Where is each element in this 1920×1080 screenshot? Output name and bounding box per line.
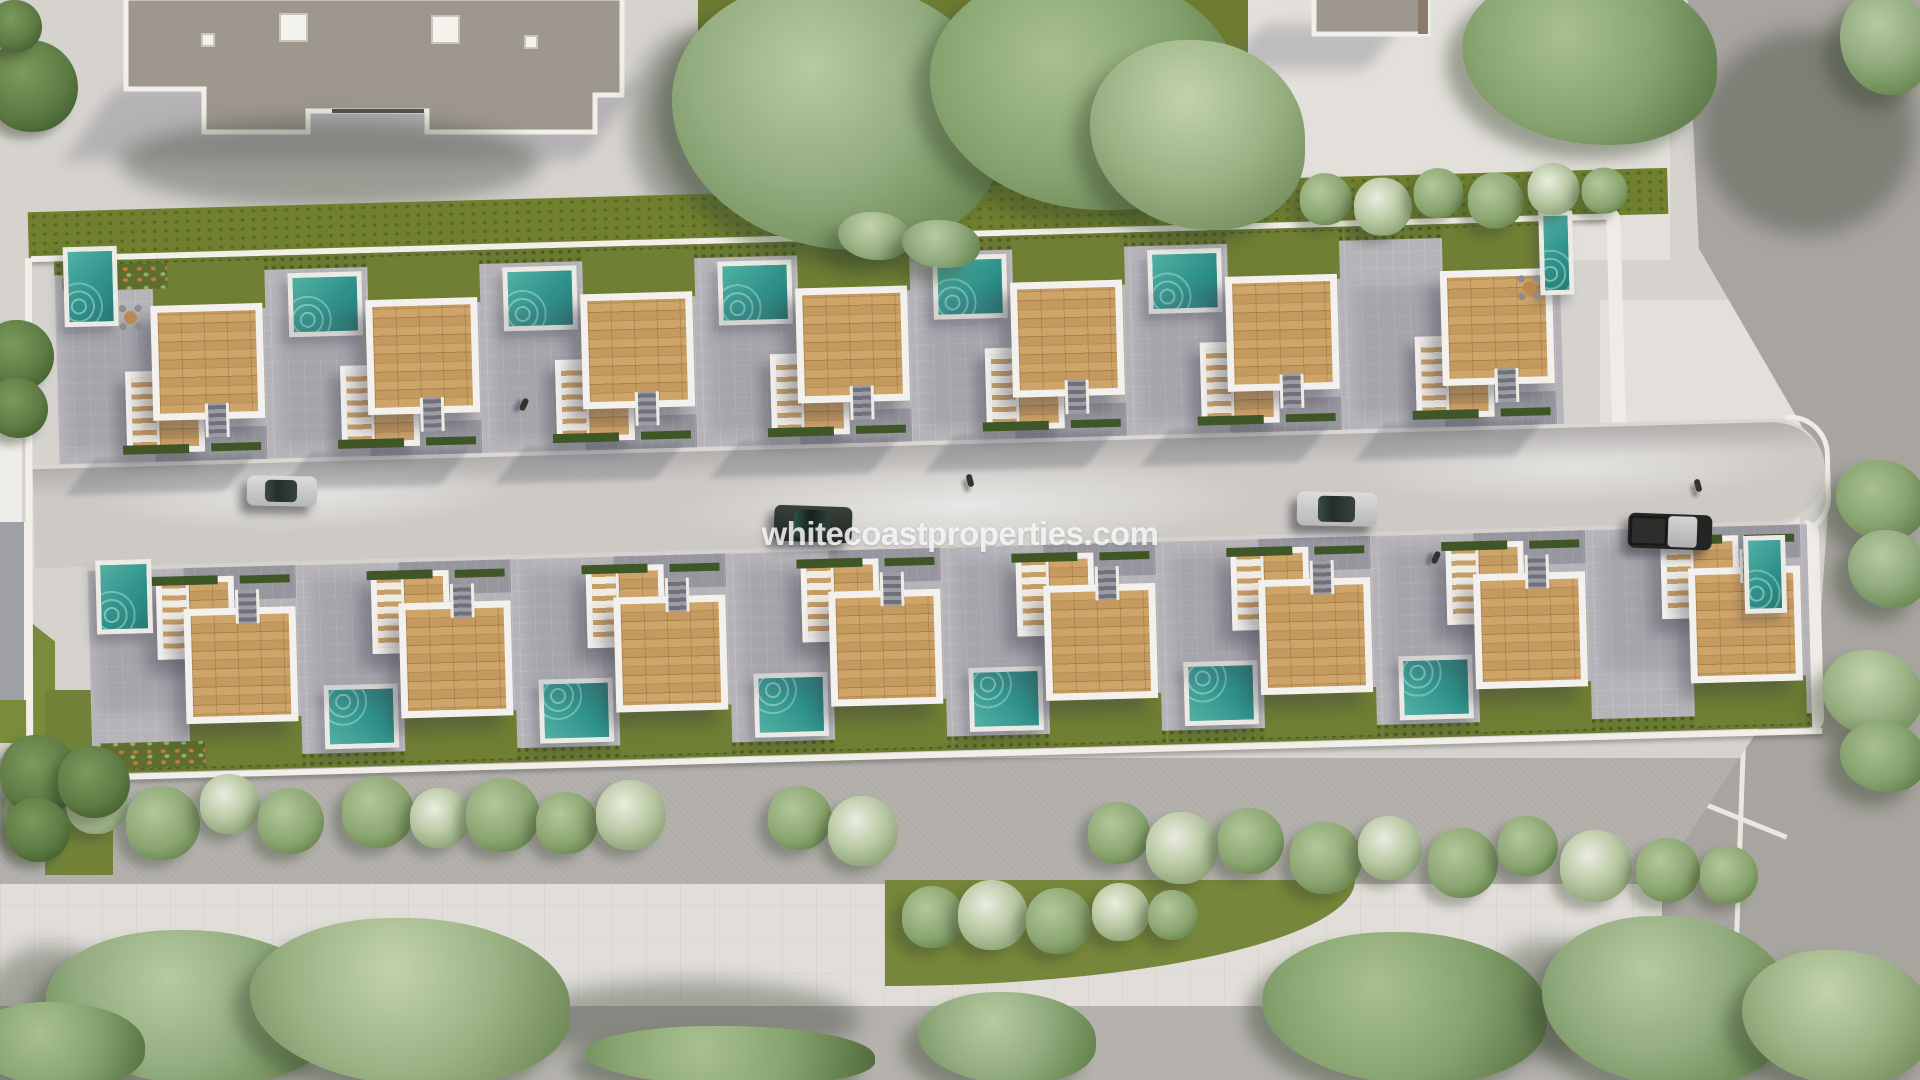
grass-patch — [1694, 675, 1807, 726]
pool — [95, 559, 153, 634]
tree — [1026, 888, 1092, 954]
tree — [1560, 830, 1632, 902]
grass-patch — [404, 710, 517, 761]
stairs — [235, 589, 260, 624]
tree — [1428, 828, 1498, 898]
villa-plot — [1129, 227, 1349, 436]
hedge — [1198, 415, 1264, 426]
parked-car — [247, 475, 318, 506]
tree — [258, 788, 324, 854]
villa-roof-terrace — [398, 600, 513, 718]
tree — [918, 992, 1096, 1080]
left-building-roof — [0, 522, 28, 700]
tree — [1088, 802, 1150, 864]
hedge — [367, 569, 433, 580]
villa-plot — [732, 547, 952, 756]
truck-cab — [1668, 516, 1698, 548]
villa-plot — [1162, 536, 1382, 745]
hedge — [768, 427, 834, 438]
tree — [200, 774, 260, 834]
aerial-render: whitecoastproperties.com — [0, 0, 1920, 1080]
tree — [466, 778, 540, 852]
hedge — [1314, 545, 1364, 554]
hedge — [581, 564, 647, 575]
grass-patch — [619, 704, 732, 755]
small-building-roof — [1310, 0, 1436, 40]
villa-roof-terrace — [183, 606, 298, 724]
villa-plot — [269, 250, 489, 459]
parked-car — [1297, 491, 1378, 526]
tree — [902, 886, 964, 948]
hedge — [1501, 407, 1551, 416]
tree — [958, 880, 1028, 950]
tree — [1290, 822, 1362, 894]
cast-shadow — [1355, 419, 1544, 460]
villa-roof-terrace — [1473, 571, 1588, 689]
tree — [1636, 838, 1700, 902]
cast-shadow — [925, 431, 1114, 472]
stairs — [880, 572, 905, 607]
tree — [768, 786, 832, 850]
stairs — [665, 577, 690, 612]
villa-plot — [484, 244, 704, 453]
pool — [63, 246, 119, 327]
street-end-curb — [1786, 414, 1832, 537]
hedge — [1226, 546, 1292, 557]
truck-bed — [1629, 515, 1667, 546]
stairs — [635, 391, 660, 426]
villa-plot — [302, 559, 522, 768]
pickup-truck — [1627, 513, 1712, 551]
tree — [1092, 883, 1150, 941]
grass-patch — [189, 716, 302, 767]
stairs — [1310, 560, 1335, 595]
villa-roof-terrace — [613, 595, 728, 713]
tree — [6, 798, 70, 862]
hedge — [1413, 409, 1479, 420]
hedge — [669, 563, 719, 572]
hedge — [338, 438, 404, 449]
outdoor-table — [117, 303, 144, 332]
pool — [1743, 535, 1787, 614]
car-windshield — [265, 479, 298, 502]
hedge — [796, 558, 862, 569]
villa-roof-terrace — [1043, 583, 1158, 701]
apartment-building-roof — [122, 0, 627, 138]
hedge — [1286, 413, 1336, 422]
outdoor-table — [1516, 273, 1543, 302]
tree — [126, 786, 200, 860]
tree — [1498, 816, 1558, 876]
tree — [596, 780, 666, 850]
pool-water — [100, 564, 148, 629]
hedge — [1529, 539, 1579, 548]
hedge — [1011, 552, 1077, 563]
grass-patch — [1264, 687, 1377, 738]
hedge — [884, 557, 934, 566]
tree — [1700, 846, 1758, 904]
hedge — [455, 568, 505, 577]
cast-shadow — [65, 454, 254, 495]
stairs — [850, 385, 875, 420]
hedge — [983, 421, 1049, 432]
hedge — [240, 574, 290, 583]
stairs — [1494, 368, 1519, 403]
pool-water — [68, 251, 114, 322]
hedge — [553, 432, 619, 443]
cast-shadow — [1140, 425, 1329, 466]
stairs — [1095, 566, 1120, 601]
pool-water — [1748, 540, 1782, 609]
left-building-wall — [0, 430, 22, 525]
stairs — [450, 583, 475, 618]
watermark-text: whitecoastproperties.com — [700, 515, 1220, 553]
grass-patch — [834, 699, 947, 750]
road-lane-line — [1702, 801, 1787, 839]
cast-shadow — [710, 437, 899, 478]
hedge — [856, 425, 906, 434]
tree — [1218, 808, 1284, 874]
stairs — [205, 403, 230, 438]
villa-plot — [1377, 530, 1597, 739]
hedge — [123, 444, 189, 455]
stairs — [1065, 380, 1090, 415]
pool — [1538, 210, 1574, 295]
villa-roof-terrace — [828, 589, 943, 707]
tree — [410, 788, 470, 848]
tree — [342, 776, 414, 848]
cast-shadow — [495, 443, 684, 484]
car-windshield — [1318, 496, 1355, 522]
tree — [1148, 890, 1198, 940]
tree — [1146, 812, 1218, 884]
hedge — [211, 442, 261, 451]
stairs — [420, 397, 445, 432]
hedge — [1071, 419, 1121, 428]
villa-roof-terrace — [1258, 577, 1373, 695]
hedge — [152, 575, 218, 586]
hedge — [641, 430, 691, 439]
stairs — [1524, 554, 1549, 589]
hedge — [426, 436, 476, 445]
grass-patch — [1049, 693, 1162, 744]
villa-plot — [947, 542, 1167, 751]
tree — [0, 40, 78, 132]
villa-plot — [1344, 221, 1564, 430]
villa-plot — [699, 238, 919, 447]
grass-patch — [1479, 681, 1592, 732]
hedge — [1441, 540, 1507, 551]
villa-plot — [517, 553, 737, 762]
tree — [58, 746, 130, 818]
stairs — [1280, 374, 1305, 409]
tree — [828, 796, 898, 866]
tree — [536, 792, 598, 854]
tree — [1358, 816, 1422, 880]
pool-water — [1543, 216, 1569, 291]
